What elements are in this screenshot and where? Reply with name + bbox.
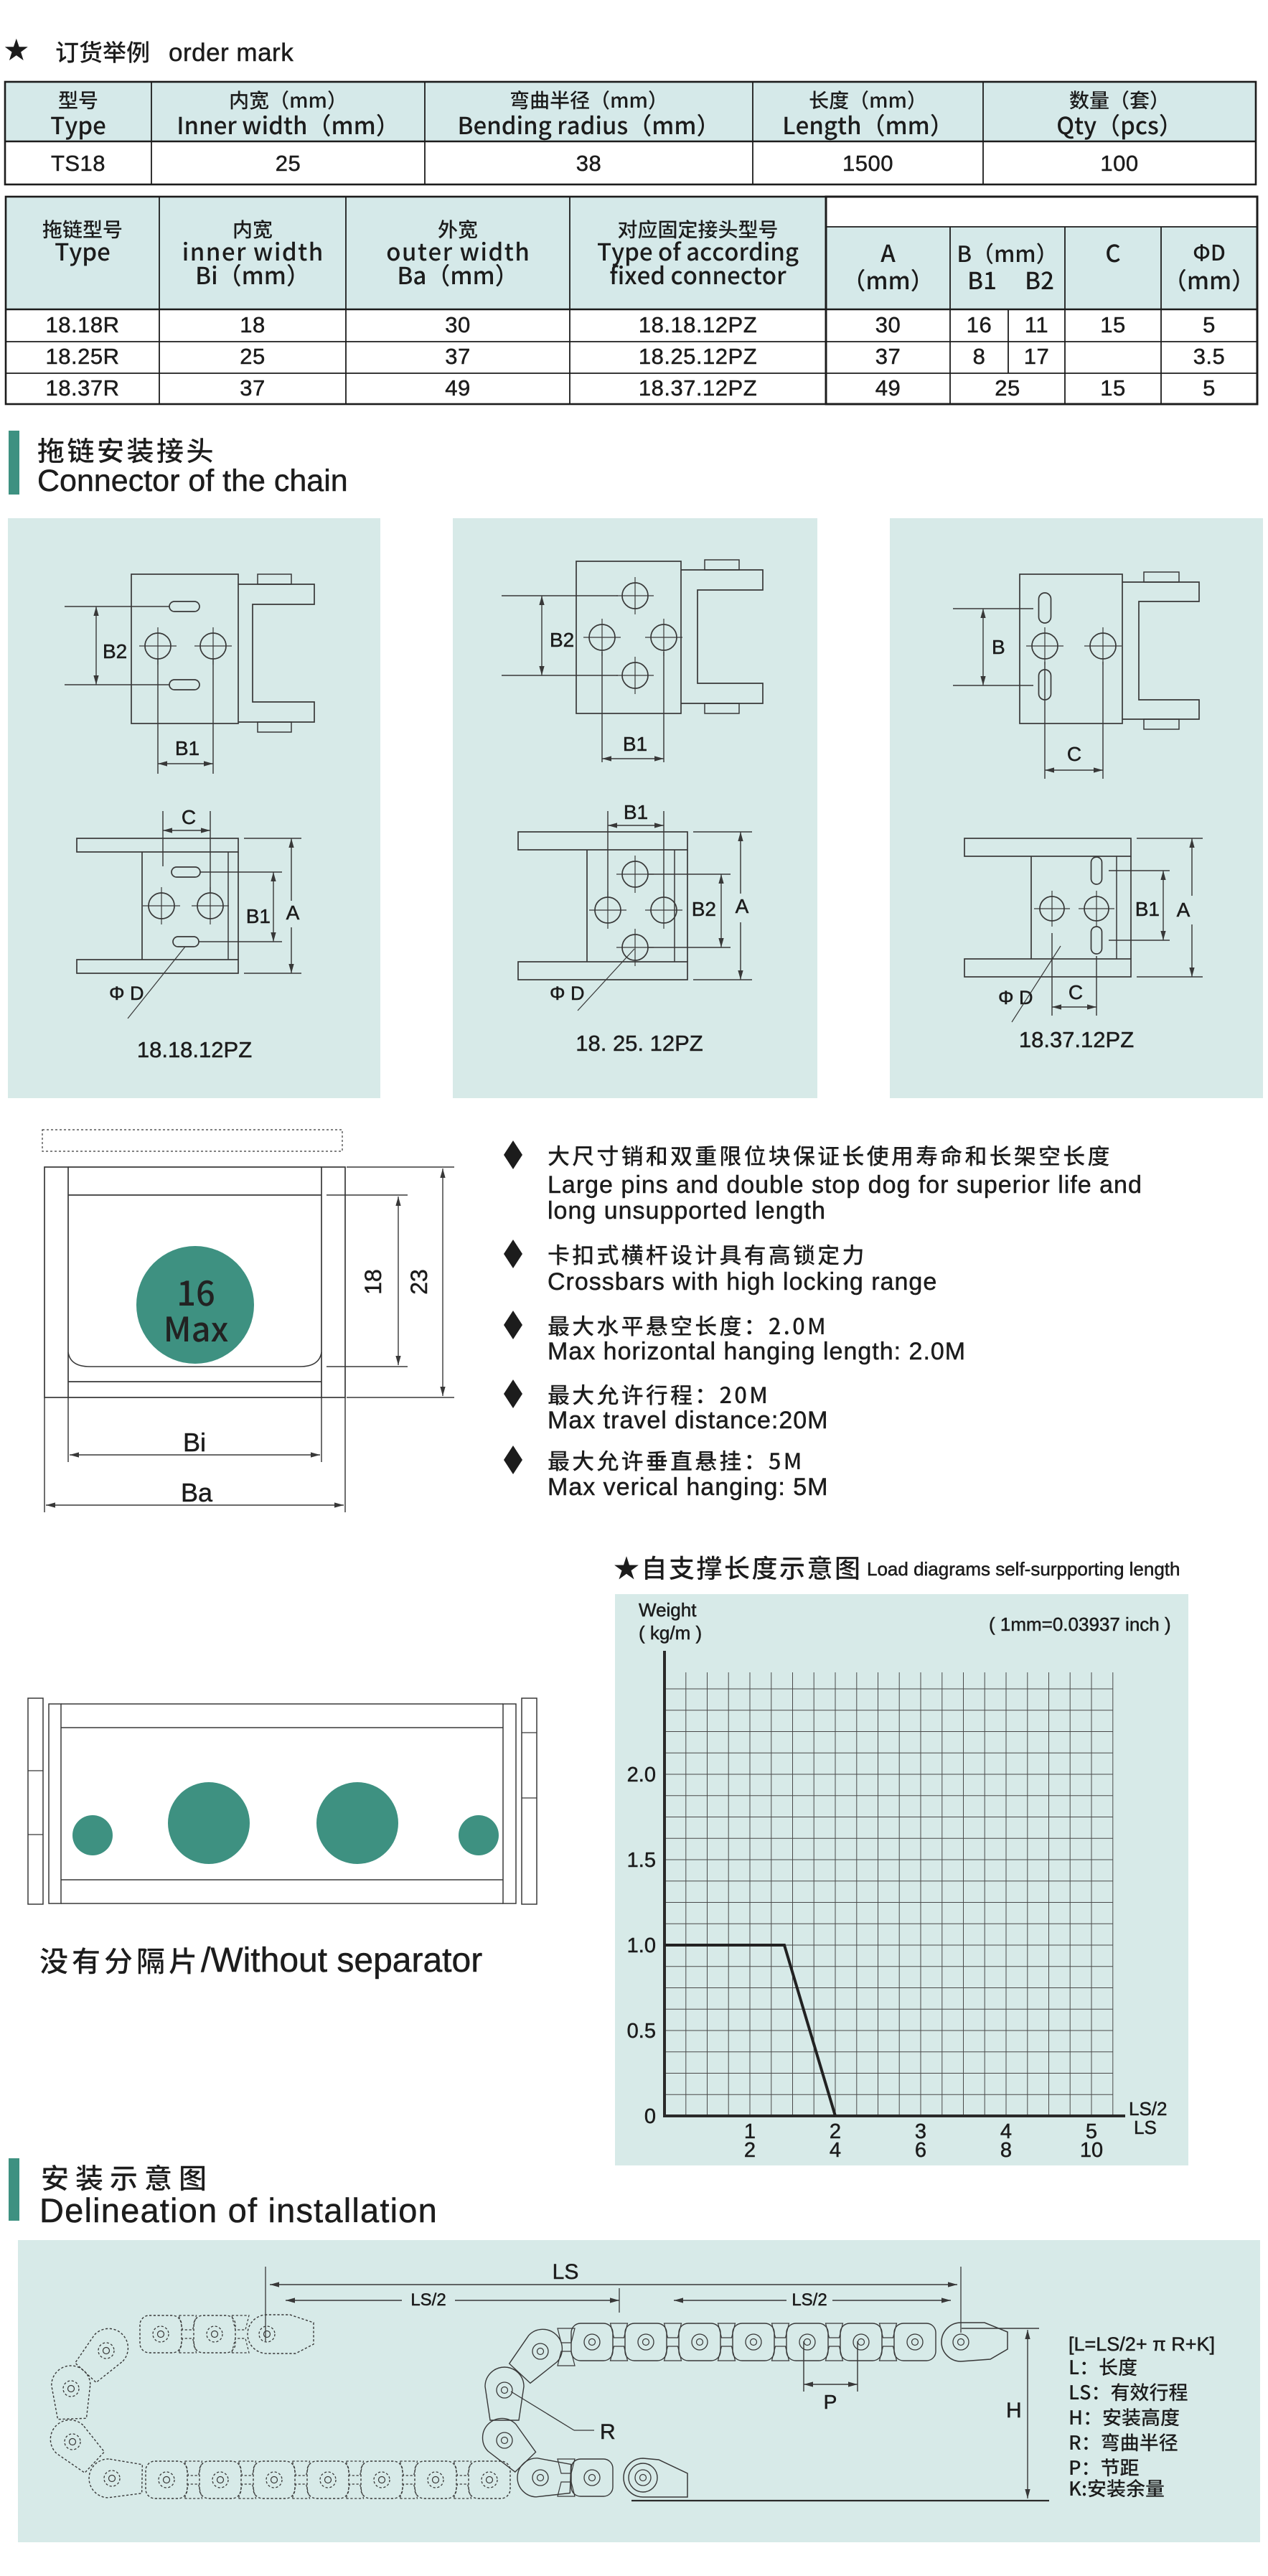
svg-text:3.5: 3.5	[1193, 344, 1226, 369]
svg-text:6: 6	[915, 2139, 926, 2162]
svg-text:100: 100	[1100, 151, 1138, 176]
svg-text:Max horizontal hanging length:: Max horizontal hanging length: 2.0M	[548, 1338, 966, 1365]
svg-text:C: C	[1069, 981, 1083, 1003]
svg-text:18: 18	[360, 1269, 386, 1295]
svg-text:18.18.12PZ: 18.18.12PZ	[639, 312, 757, 337]
svg-text:Crossbars with high locking ra: Crossbars with high locking range	[548, 1268, 937, 1296]
svg-text:4: 4	[830, 2139, 841, 2162]
svg-text:25: 25	[995, 375, 1020, 401]
svg-text:C: C	[182, 806, 196, 828]
svg-text:[L=LS/2+ π R+K]: [L=LS/2+ π R+K]	[1069, 2333, 1215, 2355]
svg-text:18.18R: 18.18R	[46, 312, 120, 337]
svg-text:30: 30	[445, 312, 470, 337]
svg-text:LS: LS	[1134, 2117, 1157, 2138]
svg-text:Connector of the chain: Connector of the chain	[37, 464, 348, 498]
svg-text:10: 10	[1080, 2139, 1103, 2162]
svg-text:18.25R: 18.25R	[46, 344, 120, 369]
svg-text:C: C	[1067, 743, 1081, 765]
svg-text:11: 11	[1025, 312, 1048, 337]
svg-text:49: 49	[445, 375, 470, 401]
svg-text:Φ D: Φ D	[550, 983, 585, 1004]
svg-text:Φ D: Φ D	[109, 983, 144, 1004]
svg-text:P: P	[824, 2391, 837, 2413]
svg-text:A: A	[736, 895, 749, 917]
svg-text:0: 0	[644, 2105, 656, 2128]
svg-text:18.18.12PZ: 18.18.12PZ	[137, 1037, 252, 1062]
svg-text:18.37.12PZ: 18.37.12PZ	[639, 375, 757, 401]
svg-text:49: 49	[875, 375, 901, 401]
svg-text:Bi: Bi	[183, 1428, 206, 1457]
svg-text:B2: B2	[103, 640, 127, 662]
svg-text:15: 15	[1100, 375, 1125, 401]
svg-text:0.5: 0.5	[627, 2020, 656, 2043]
svg-text:B1: B1	[623, 733, 647, 755]
svg-text:( kg/m ): ( kg/m )	[639, 1622, 702, 1644]
svg-text:R: R	[600, 2420, 616, 2444]
svg-text:B2: B2	[550, 629, 574, 651]
svg-text:B1: B1	[175, 737, 199, 759]
svg-text:Load diagrams self-surpporting: Load diagrams self-surpporting length	[867, 1558, 1180, 1580]
svg-text:long unsupported length: long unsupported length	[548, 1197, 826, 1224]
svg-text:Max travel distance:20M: Max travel distance:20M	[548, 1407, 829, 1434]
svg-text:5: 5	[1203, 312, 1216, 337]
svg-text:B: B	[992, 636, 1005, 658]
svg-text:2: 2	[744, 2139, 756, 2162]
svg-text:H: H	[1006, 2399, 1022, 2422]
svg-text:25: 25	[276, 151, 301, 176]
svg-text:TS18: TS18	[51, 151, 105, 176]
svg-text:B1: B1	[624, 801, 648, 823]
svg-text:B1: B1	[246, 905, 271, 927]
svg-text:/Without separator: /Without separator	[201, 1942, 482, 1980]
svg-text:23: 23	[406, 1269, 432, 1295]
svg-text:Max verical hanging: 5M: Max verical hanging: 5M	[548, 1474, 829, 1501]
svg-text:25: 25	[240, 344, 265, 369]
svg-text:30: 30	[875, 312, 901, 337]
svg-text:2.0: 2.0	[627, 1764, 656, 1786]
svg-text:B2: B2	[692, 898, 716, 920]
svg-text:8: 8	[1000, 2139, 1012, 2162]
svg-text:1500: 1500	[842, 151, 893, 176]
svg-text:5: 5	[1203, 375, 1216, 401]
svg-text:Large pins and double stop dog: Large pins and double stop dog for super…	[548, 1171, 1142, 1199]
svg-text:37: 37	[445, 344, 470, 369]
svg-text:A: A	[286, 901, 300, 924]
svg-text:( 1mm=0.03937 inch ): ( 1mm=0.03937 inch )	[989, 1613, 1171, 1635]
svg-text:15: 15	[1100, 312, 1125, 337]
svg-text:37: 37	[240, 375, 265, 401]
svg-text:B1: B1	[1135, 898, 1160, 920]
svg-text:8: 8	[973, 344, 986, 369]
svg-text:18. 25. 12PZ: 18. 25. 12PZ	[576, 1031, 703, 1056]
svg-text:A: A	[1177, 899, 1190, 921]
svg-text:1.5: 1.5	[627, 1849, 656, 1872]
svg-text:16: 16	[967, 312, 992, 337]
svg-text:38: 38	[576, 151, 601, 176]
svg-text:37: 37	[875, 344, 901, 369]
svg-text:18: 18	[240, 312, 265, 337]
svg-text:Weight: Weight	[639, 1599, 697, 1621]
svg-text:Ba: Ba	[181, 1478, 213, 1507]
svg-text:18.37.12PZ: 18.37.12PZ	[1019, 1027, 1134, 1052]
svg-text:1.0: 1.0	[627, 1934, 656, 1957]
svg-text:LS/2: LS/2	[410, 2290, 446, 2310]
svg-text:17: 17	[1024, 344, 1049, 369]
svg-text:order mark: order mark	[169, 39, 293, 67]
svg-text:18.25.12PZ: 18.25.12PZ	[639, 344, 757, 369]
svg-text:LS: LS	[553, 2260, 579, 2284]
svg-text:Delineation of installation: Delineation of installation	[39, 2191, 438, 2229]
svg-text:18.37R: 18.37R	[46, 375, 120, 401]
svg-text:LS/2: LS/2	[792, 2290, 827, 2310]
